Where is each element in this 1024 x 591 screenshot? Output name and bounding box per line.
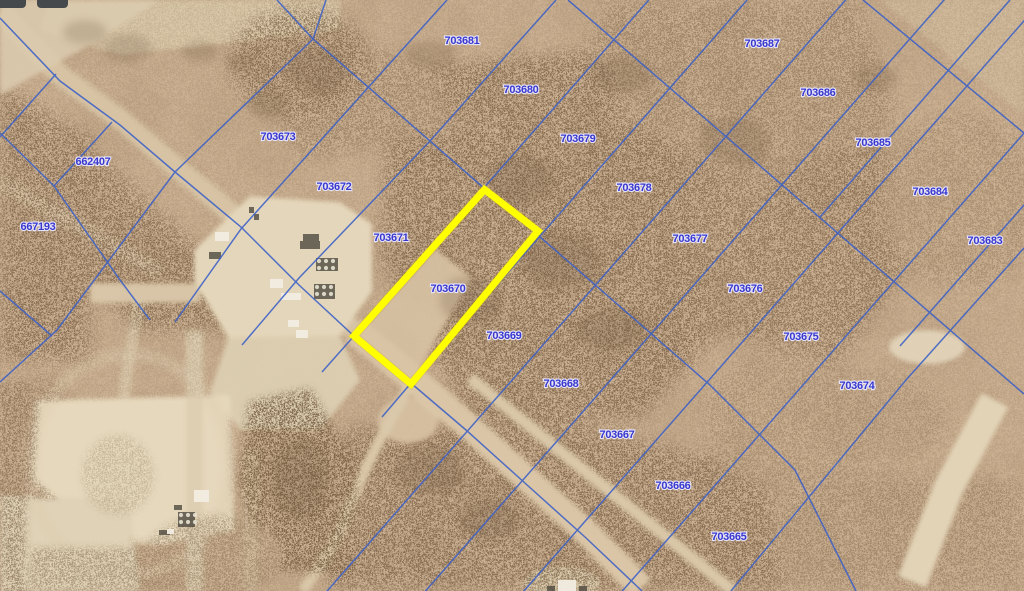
svg-text:703670: 703670 (431, 283, 466, 295)
svg-text:703669: 703669 (487, 330, 522, 342)
svg-text:703674: 703674 (840, 380, 876, 392)
svg-text:703686: 703686 (801, 87, 836, 99)
svg-text:667193: 667193 (21, 221, 56, 233)
svg-text:703676: 703676 (728, 283, 763, 295)
svg-text:703666: 703666 (656, 480, 691, 492)
svg-text:703681: 703681 (445, 35, 480, 47)
svg-text:703685: 703685 (856, 137, 891, 149)
svg-text:703684: 703684 (913, 186, 949, 198)
svg-text:703672: 703672 (317, 181, 352, 193)
svg-text:703665: 703665 (712, 531, 747, 543)
svg-text:703677: 703677 (673, 233, 708, 245)
svg-text:703675: 703675 (784, 331, 819, 343)
svg-text:703683: 703683 (968, 235, 1003, 247)
svg-text:703678: 703678 (617, 182, 652, 194)
svg-text:703671: 703671 (374, 232, 409, 244)
svg-text:703687: 703687 (745, 38, 780, 50)
svg-text:703673: 703673 (261, 131, 296, 143)
svg-text:703680: 703680 (504, 84, 539, 96)
svg-text:703668: 703668 (544, 378, 579, 390)
svg-text:703679: 703679 (561, 133, 596, 145)
svg-text:703667: 703667 (600, 429, 635, 441)
svg-text:662407: 662407 (76, 156, 111, 168)
